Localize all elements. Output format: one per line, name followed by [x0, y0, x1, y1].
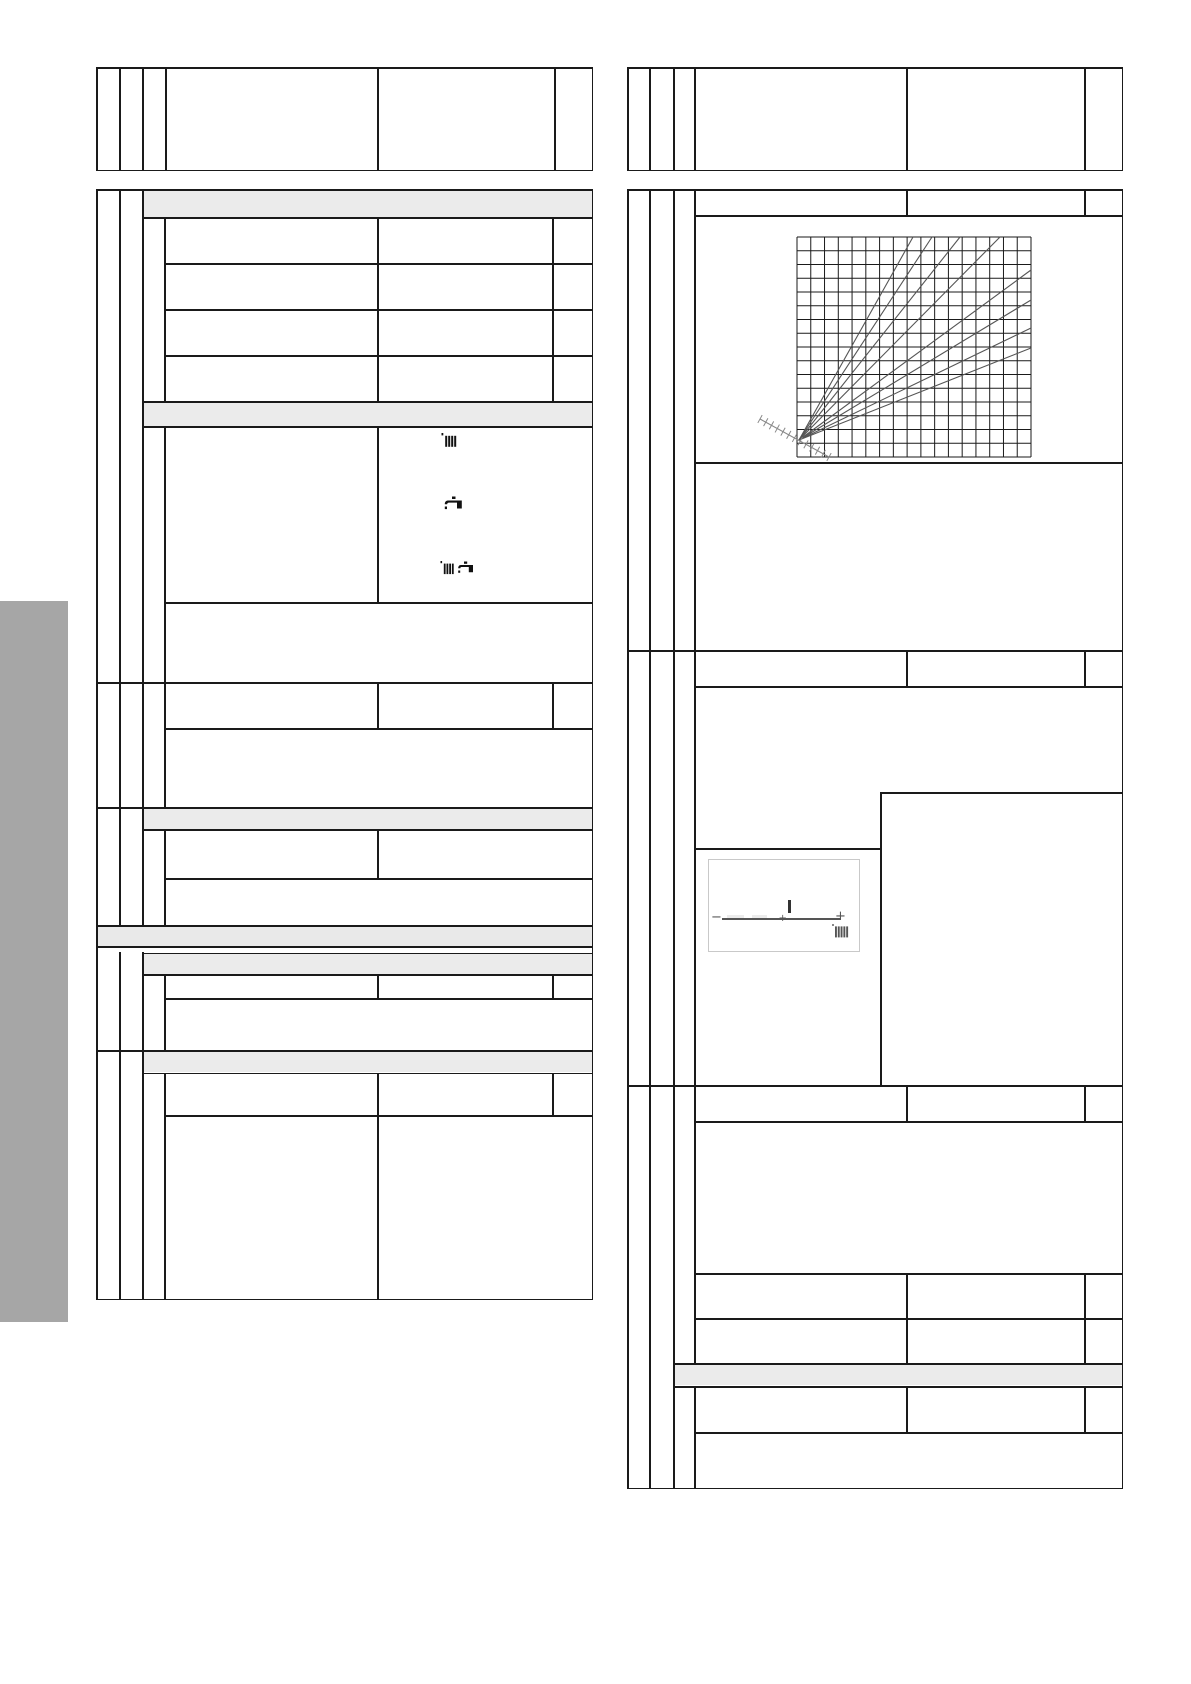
border-line: [906, 1273, 908, 1363]
border-line: [627, 189, 629, 1489]
border-line: [552, 1073, 554, 1115]
border-line: [164, 263, 593, 265]
border-line: [164, 1073, 166, 1300]
section-band: [142, 191, 592, 217]
border-line: [1122, 67, 1124, 171]
border-line: [906, 1085, 908, 1121]
border-line: [880, 792, 1123, 794]
border-line: [906, 650, 908, 686]
border-line: [694, 1318, 1123, 1320]
border-line: [1084, 189, 1086, 215]
border-line: [96, 189, 98, 1300]
border-line: [592, 189, 594, 1300]
section-band-full-width: [96, 927, 592, 946]
border-line: [673, 67, 675, 171]
border-line: [880, 792, 882, 1085]
border-line: [119, 67, 121, 171]
border-line: [377, 683, 379, 728]
border-line: [164, 427, 166, 807]
border-line: [142, 401, 592, 403]
border-line: [142, 952, 144, 1300]
section-band: [142, 809, 592, 829]
border-line: [164, 998, 593, 1000]
border-line: [694, 462, 1123, 464]
border-line: [164, 602, 593, 604]
cursor-bar: [788, 900, 791, 913]
display-frame: [708, 859, 860, 952]
border-line: [694, 848, 880, 850]
border-line: [164, 218, 166, 402]
border-line: [1084, 650, 1086, 686]
border-line: [552, 218, 554, 402]
radiator-icon: [441, 433, 457, 448]
border-line: [627, 1488, 1123, 1490]
border-line: [164, 309, 593, 311]
border-line: [377, 427, 379, 602]
border-line: [1084, 67, 1086, 171]
border-line: [119, 189, 121, 925]
border-line: [164, 728, 593, 730]
border-line: [649, 189, 651, 1489]
border-line: [694, 67, 696, 171]
border-line: [649, 67, 651, 171]
border-line: [142, 974, 592, 976]
border-line: [694, 1273, 1123, 1275]
border-line: [142, 829, 592, 831]
border-line: [673, 1386, 1123, 1388]
border-line: [164, 1115, 593, 1117]
border-line: [694, 1386, 696, 1489]
border-line: [377, 830, 379, 878]
border-line: [377, 1073, 379, 1300]
border-line: [164, 830, 166, 925]
border-line: [142, 189, 144, 925]
border-line: [1084, 1085, 1086, 1121]
page: − + +: [0, 0, 1191, 1684]
border-line: [906, 67, 908, 171]
border-line: [96, 67, 98, 171]
border-line: [1122, 189, 1124, 1489]
border-line: [694, 1432, 1123, 1434]
border-line: [164, 878, 593, 880]
border-line: [554, 67, 556, 171]
border-line: [552, 975, 554, 998]
border-line: [96, 170, 593, 172]
border-line: [96, 946, 593, 948]
border-line: [164, 355, 593, 357]
border-line: [627, 67, 1123, 69]
border-line: [627, 170, 1123, 172]
border-line: [96, 1050, 593, 1052]
border-line: [627, 1085, 1123, 1087]
border-line: [96, 67, 593, 69]
border-line: [592, 67, 594, 171]
border-line: [377, 218, 379, 402]
border-line: [377, 975, 379, 998]
border-line: [906, 1386, 908, 1432]
border-line: [119, 952, 121, 1300]
border-line: [142, 217, 592, 219]
border-line: [96, 807, 593, 809]
border-line: [96, 682, 593, 684]
border-line: [694, 189, 696, 1363]
section-band: [673, 1365, 1122, 1385]
border-line: [1084, 1386, 1086, 1432]
border-line: [552, 683, 554, 728]
border-line: [377, 67, 379, 171]
section-band: [142, 1052, 592, 1072]
sidebar-tab: [0, 601, 68, 1322]
border-line: [1084, 1273, 1086, 1363]
border-line: [142, 953, 592, 955]
border-line: [96, 925, 593, 927]
border-line: [627, 67, 629, 171]
minus-label: −: [711, 913, 722, 923]
display-radiator-icon: [832, 924, 849, 938]
border-line: [673, 1363, 1123, 1365]
border-line: [165, 67, 167, 171]
section-band: [142, 403, 592, 426]
border-line: [142, 426, 592, 428]
border-line: [142, 1073, 592, 1075]
border-line: [694, 1121, 1123, 1123]
radiator-and-tap-icon: [440, 561, 474, 576]
border-line: [96, 189, 593, 191]
plus-label: +: [835, 912, 846, 922]
tap-icon: [444, 496, 463, 513]
border-line: [164, 975, 166, 1050]
border-line: [142, 67, 144, 171]
border-line: [906, 189, 908, 215]
border-line: [694, 215, 1123, 217]
section-band: [142, 954, 592, 974]
border-line: [673, 189, 675, 1489]
border-line: [96, 1299, 593, 1301]
border-line: [694, 686, 1123, 688]
center-tick: +: [779, 915, 787, 923]
border-line: [627, 189, 1123, 191]
border-line: [627, 650, 1123, 652]
